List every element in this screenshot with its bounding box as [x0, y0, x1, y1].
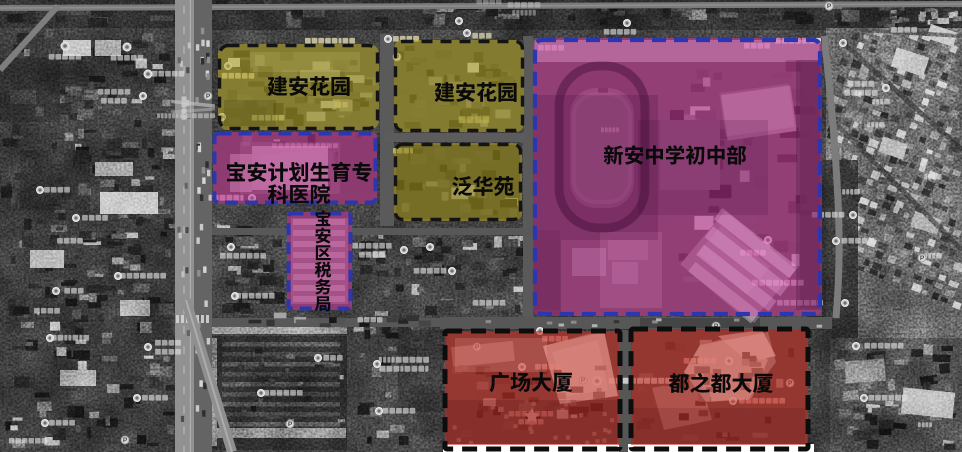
- svg-text:P: P: [206, 93, 211, 100]
- svg-text:P: P: [827, 3, 832, 10]
- svg-text:P: P: [123, 437, 128, 444]
- svg-text:P: P: [288, 421, 293, 428]
- svg-text:P: P: [920, 255, 925, 262]
